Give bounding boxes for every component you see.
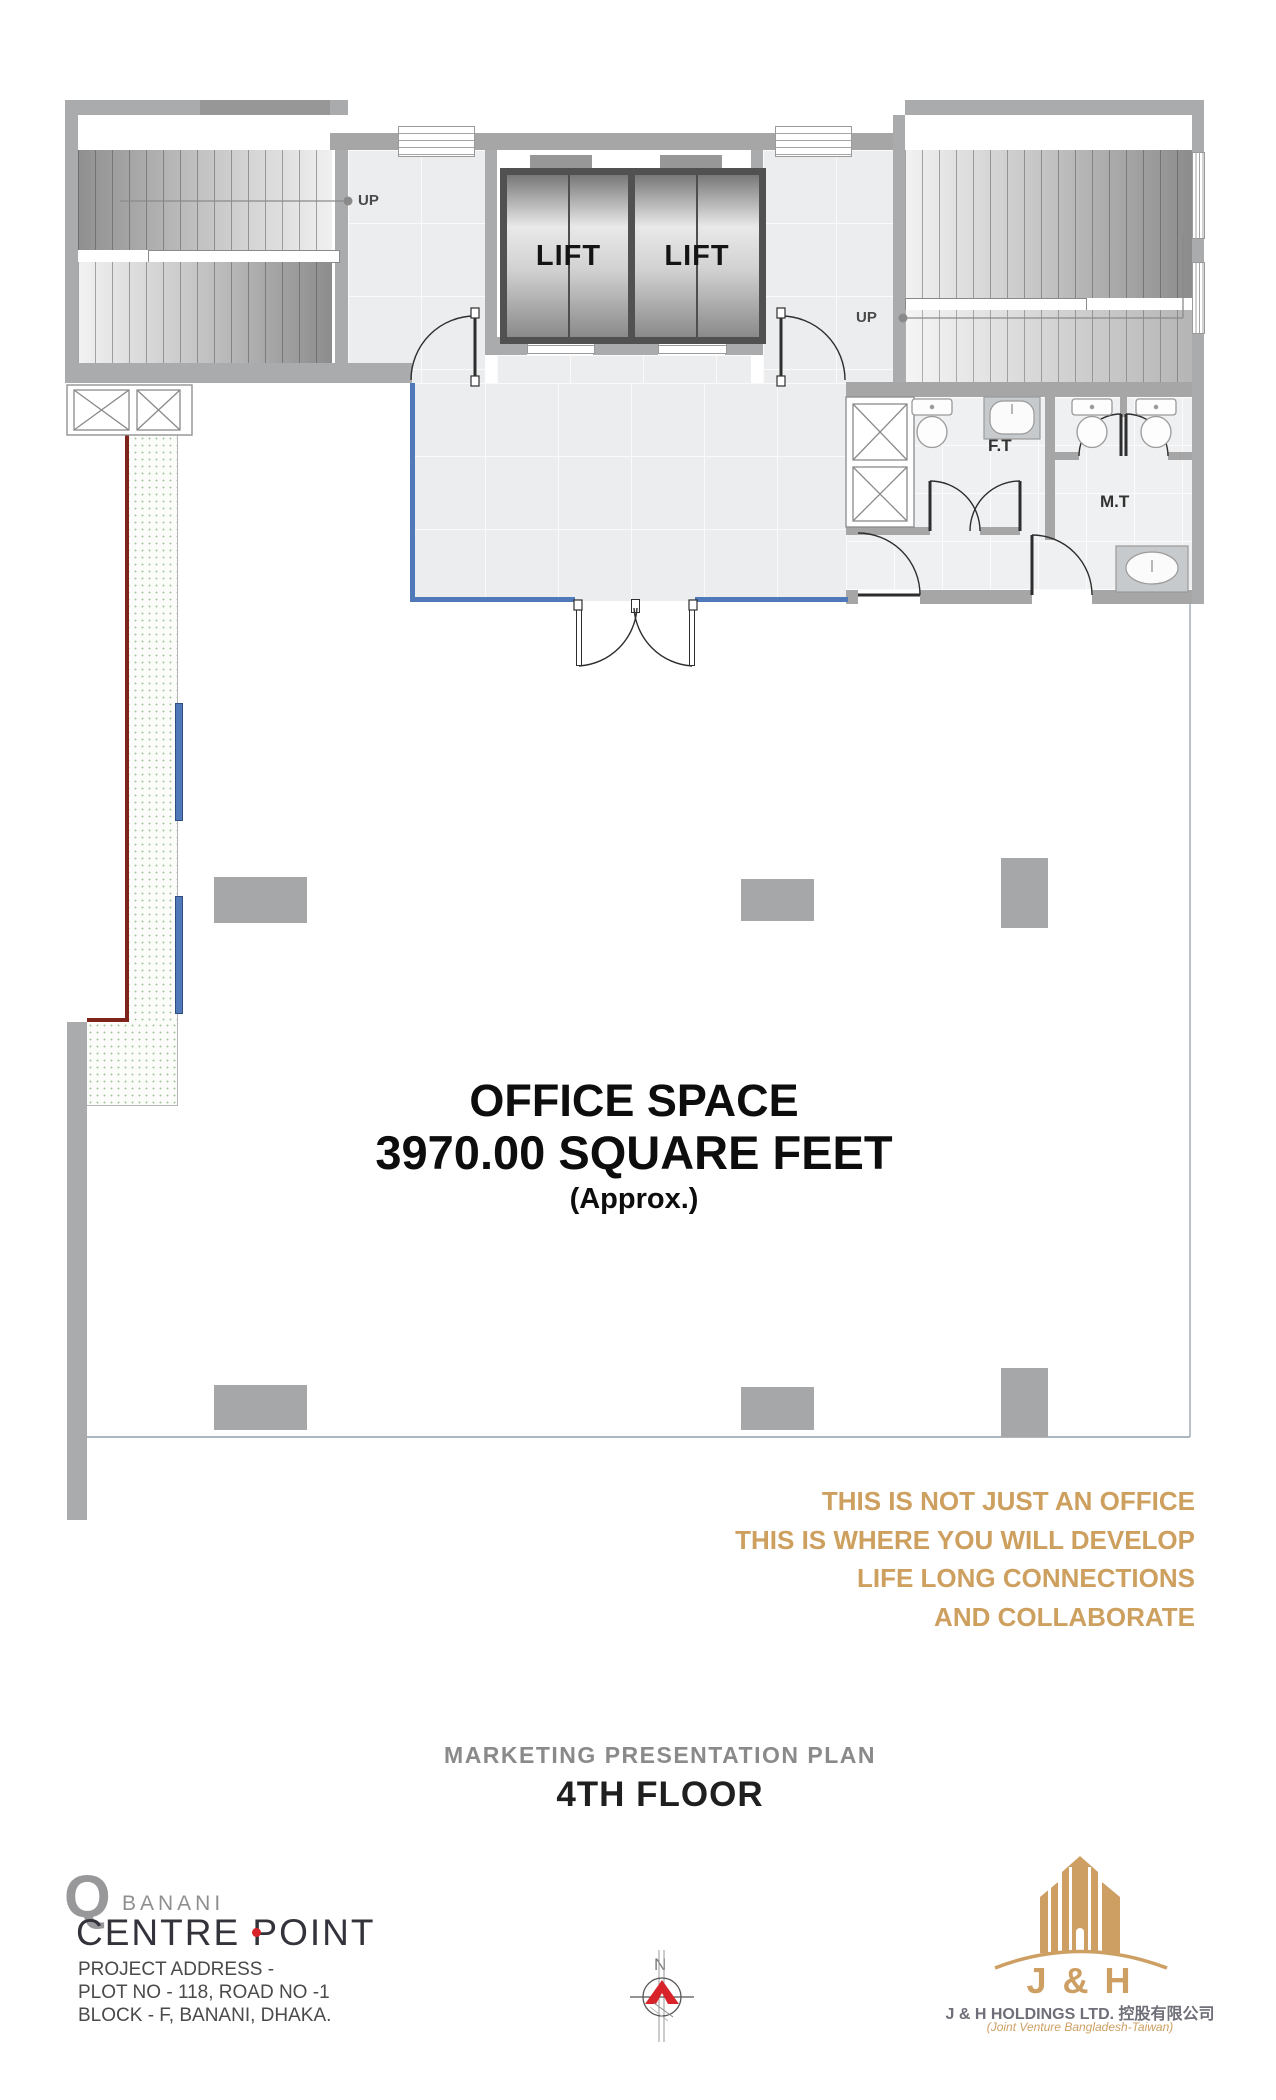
corridor-floor bbox=[763, 150, 893, 383]
title-block: MARKETING PRESENTATION PLAN 4TH FLOOR bbox=[410, 1742, 910, 1815]
stair-left-wall-south bbox=[65, 363, 412, 383]
tagline-line: LIFE LONG CONNECTIONS bbox=[700, 1559, 1195, 1598]
outer-wall-top-right bbox=[905, 100, 1204, 115]
column bbox=[1001, 1368, 1048, 1437]
office-space-approx: (Approx.) bbox=[334, 1180, 934, 1218]
stair-right-flight-upper bbox=[905, 150, 1192, 298]
lift-cab-left: LIFT bbox=[500, 168, 637, 344]
lobby-floor bbox=[412, 383, 848, 601]
mt-entry-wall-right bbox=[1168, 452, 1194, 460]
stair-right-wall-west bbox=[893, 115, 905, 400]
brand-o-dot bbox=[252, 1928, 261, 1937]
stair-left-up-label: UP bbox=[358, 192, 379, 209]
office-space-annotation: OFFICE SPACE 3970.00 SQUARE FEET (Approx… bbox=[334, 1076, 934, 1218]
column bbox=[214, 1385, 307, 1430]
ft-vestibule-wall-1 bbox=[846, 527, 930, 535]
office-boundary-east bbox=[1189, 604, 1191, 1437]
lift-cab-right: LIFT bbox=[628, 168, 766, 344]
lift-header-2 bbox=[660, 155, 722, 168]
toilet-wall-bottom-2 bbox=[920, 590, 1032, 604]
planter-strip bbox=[125, 435, 178, 1105]
window-top-1 bbox=[398, 126, 475, 157]
address-line-2: PLOT NO - 118, ROAD NO -1 bbox=[78, 1981, 331, 2004]
mt-entry-wall-left bbox=[1055, 452, 1079, 460]
west-window-1 bbox=[175, 703, 183, 821]
stair-left-flight-upper bbox=[78, 150, 332, 250]
floor-plan-page: UP LIFT LIFT UP F.T M.T bbox=[0, 0, 1276, 2100]
window-right-2 bbox=[1192, 262, 1205, 334]
setback-line-horizontal bbox=[87, 1018, 129, 1022]
entrance-arc-right bbox=[634, 608, 692, 666]
west-boundary-wall bbox=[67, 1022, 87, 1520]
office-space-area: 3970.00 SQUARE FEET bbox=[334, 1126, 934, 1180]
toilet-floor bbox=[846, 397, 1192, 590]
entrance-door-leaf-right bbox=[689, 602, 695, 666]
column bbox=[741, 1387, 814, 1430]
entrance-arc-left bbox=[579, 608, 637, 666]
lobby-boundary-west bbox=[410, 383, 415, 601]
landing-floor bbox=[348, 150, 485, 383]
column bbox=[214, 877, 307, 923]
company-subname: (Joint Venture Bangladesh-Taiwan) bbox=[930, 2020, 1230, 2034]
lift-wall-left bbox=[485, 150, 497, 355]
planter-strip-wide bbox=[87, 1022, 178, 1106]
marketing-tagline: THIS IS NOT JUST AN OFFICE THIS IS WHERE… bbox=[700, 1482, 1195, 1636]
lobby-boundary-south-left bbox=[410, 597, 575, 602]
stair-left-wall-east bbox=[335, 150, 348, 382]
lift-right-label: LIFT bbox=[664, 240, 729, 273]
outer-wall-top-left-dark bbox=[200, 100, 330, 115]
office-space-title: OFFICE SPACE bbox=[334, 1076, 934, 1126]
tagline-line: THIS IS WHERE YOU WILL DEVELOP bbox=[700, 1521, 1195, 1560]
developer-brand-name: CENTRE POINT bbox=[76, 1912, 375, 1954]
entrance-door-leaf-left bbox=[576, 602, 582, 666]
address-line-1: PROJECT ADDRESS - bbox=[78, 1958, 331, 1981]
lobby-boundary-south-right bbox=[695, 597, 848, 602]
address-line-3: BLOCK - F, BANANI, DHAKA. bbox=[78, 2004, 331, 2027]
entrance-door-center-stop bbox=[631, 599, 640, 613]
female-toilet-label: F.T bbox=[988, 436, 1012, 456]
tagline-line: AND COLLABORATE bbox=[700, 1598, 1195, 1637]
plan-type-title: MARKETING PRESENTATION PLAN bbox=[410, 1742, 910, 1769]
stair-right-up-label: UP bbox=[856, 309, 877, 326]
stair-left-wall-west bbox=[65, 115, 78, 382]
tagline-line: THIS IS NOT JUST AN OFFICE bbox=[700, 1482, 1195, 1521]
window-top-2 bbox=[775, 126, 852, 157]
toilet-wall-bottom-3 bbox=[1092, 590, 1204, 604]
lift-left-label: LIFT bbox=[536, 240, 601, 273]
lift-header-1 bbox=[530, 155, 592, 168]
ft-vestibule-wall-2 bbox=[980, 527, 1020, 535]
lift-wall-top bbox=[485, 133, 763, 150]
toilet-wall-top bbox=[846, 382, 1204, 397]
company-monogram: J & H bbox=[980, 1960, 1180, 2002]
stair-left-flight-lower bbox=[78, 262, 332, 363]
duct-shaft-left bbox=[67, 385, 192, 435]
window-right-1 bbox=[1192, 152, 1205, 239]
north-label: N bbox=[654, 1955, 666, 1975]
column bbox=[1001, 858, 1048, 928]
project-address: PROJECT ADDRESS - PLOT NO - 118, ROAD NO… bbox=[78, 1958, 331, 2027]
toilet-partition-fm bbox=[1045, 397, 1055, 540]
lift-front-floor bbox=[497, 355, 751, 383]
mt-stall-partition bbox=[1120, 397, 1127, 417]
floor-title: 4TH FLOOR bbox=[410, 1775, 910, 1815]
male-toilet-label: M.T bbox=[1100, 492, 1129, 512]
stair-right-flight-lower bbox=[905, 310, 1192, 382]
setback-line-vertical bbox=[125, 435, 129, 1022]
column bbox=[741, 879, 814, 921]
west-window-2 bbox=[175, 896, 183, 1014]
